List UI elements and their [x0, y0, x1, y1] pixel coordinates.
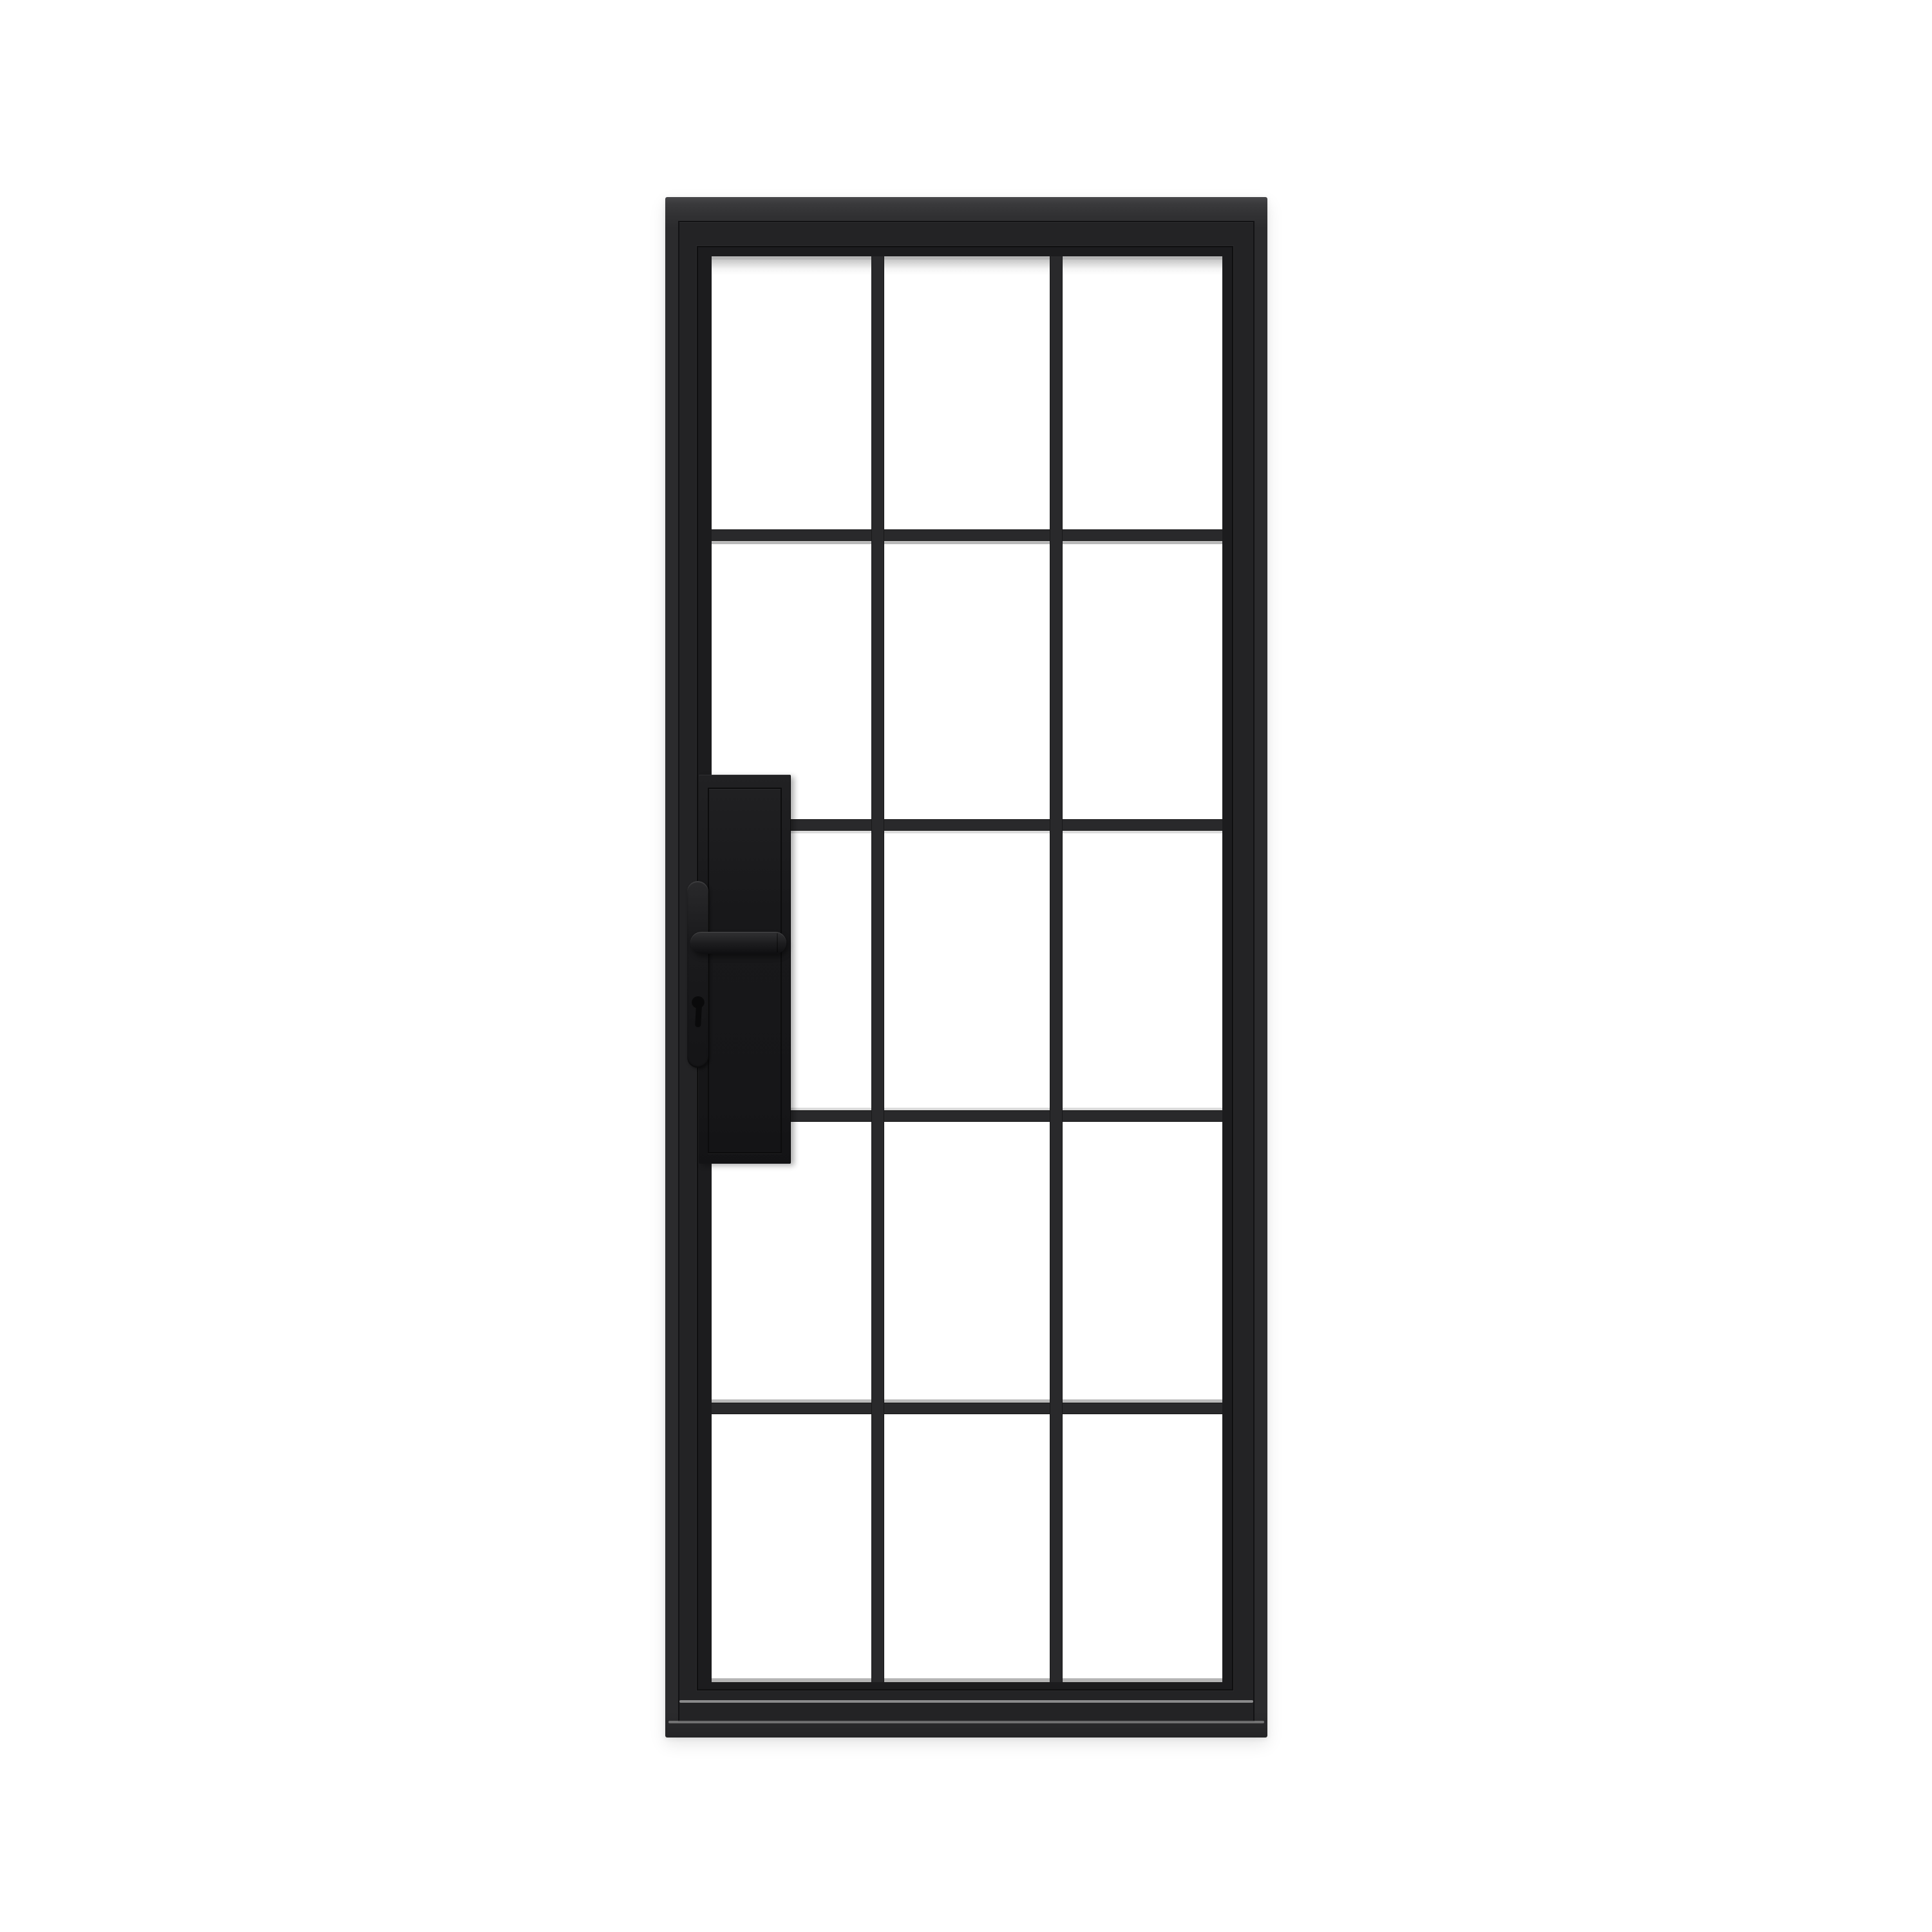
steel-door [665, 197, 1267, 1738]
grid-rail [712, 529, 1222, 541]
backplate-panel [708, 788, 782, 1153]
glint-line [712, 256, 1222, 260]
frame-sill-line [668, 1721, 1264, 1723]
grid-rail [712, 1403, 1222, 1414]
grid-mullion [871, 256, 884, 1682]
grid-mullion [1050, 256, 1063, 1682]
handle-backplate [699, 775, 791, 1164]
glass-reflection-shade [712, 260, 1222, 275]
product-photo-canvas [0, 0, 1932, 1932]
glint-line [712, 541, 1222, 544]
escutcheon-plate [687, 881, 708, 1068]
sill-highlight-line [679, 1700, 1253, 1703]
glint-line [712, 1678, 1222, 1682]
lever-handle-icon [690, 932, 786, 954]
keyhole-stem [695, 1006, 702, 1027]
